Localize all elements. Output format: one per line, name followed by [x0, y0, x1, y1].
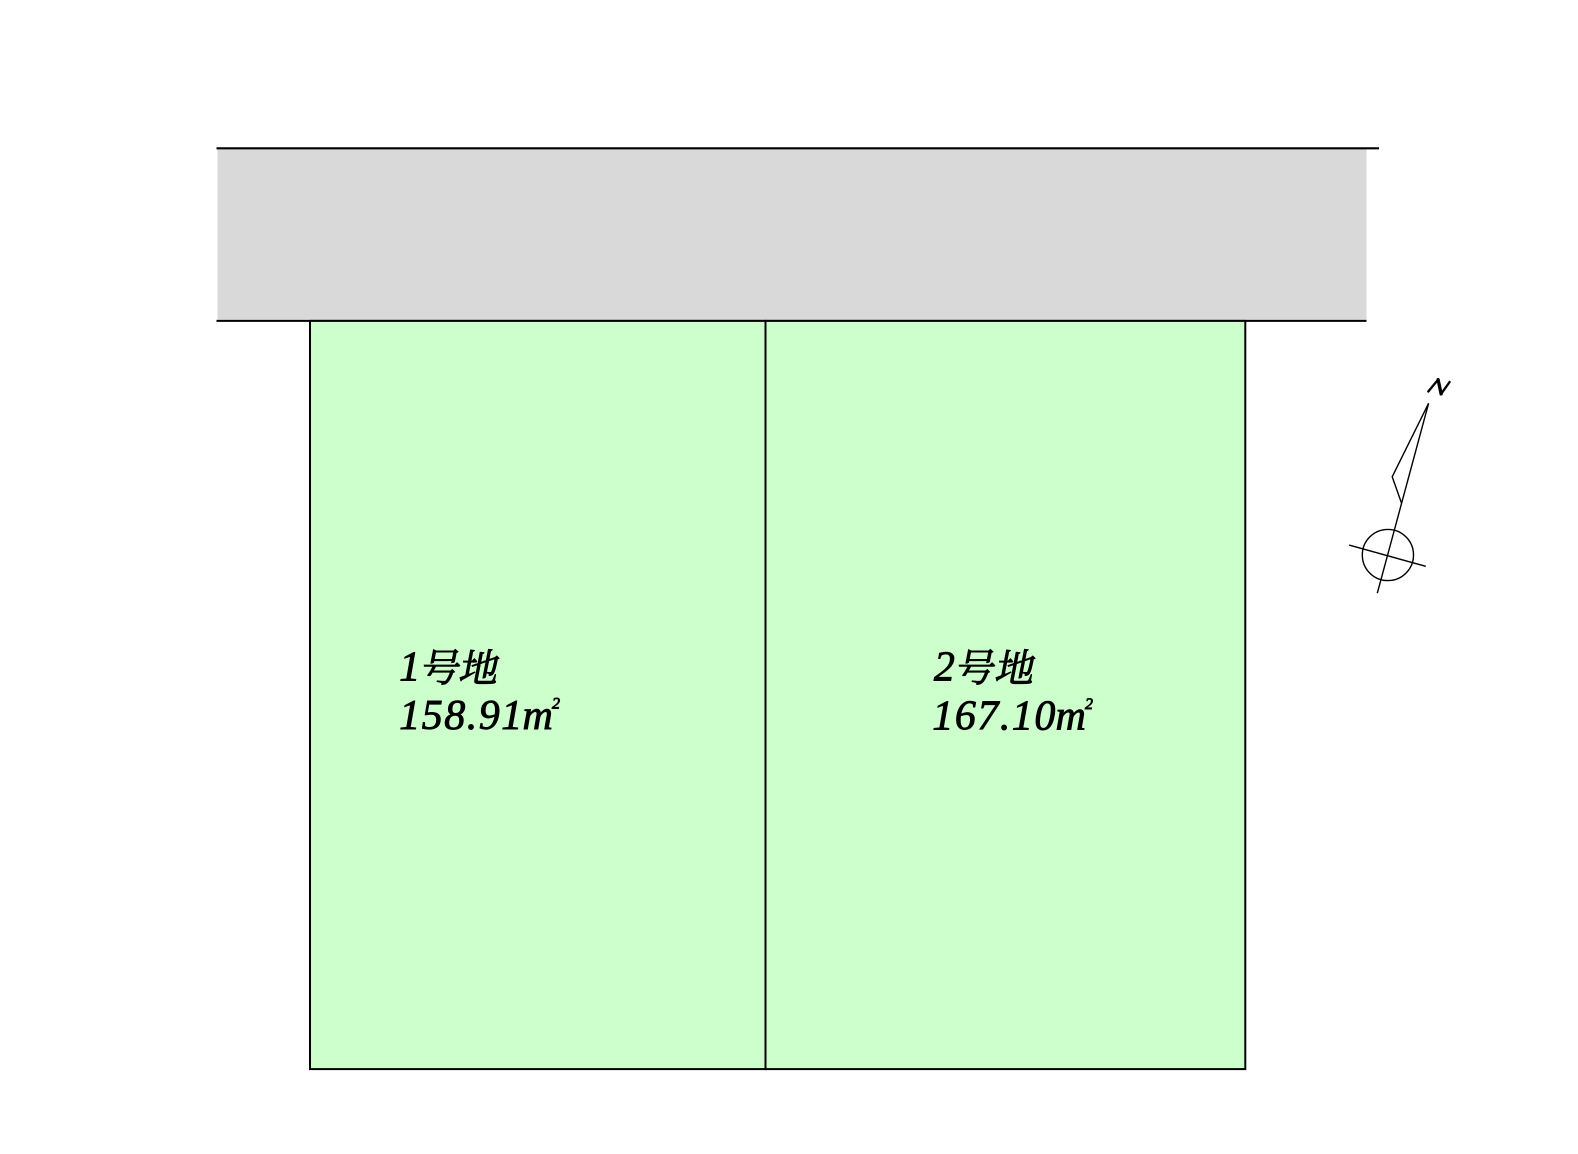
svg-text:m: m: [523, 693, 553, 739]
svg-text:2: 2: [552, 695, 560, 712]
svg-text:2: 2: [934, 645, 955, 691]
svg-text:2: 2: [1085, 696, 1093, 713]
svg-text:167.10: 167.10: [932, 694, 1057, 740]
svg-text:158.91: 158.91: [399, 693, 524, 739]
svg-text:m: m: [1056, 694, 1086, 740]
svg-text:1: 1: [399, 645, 420, 691]
